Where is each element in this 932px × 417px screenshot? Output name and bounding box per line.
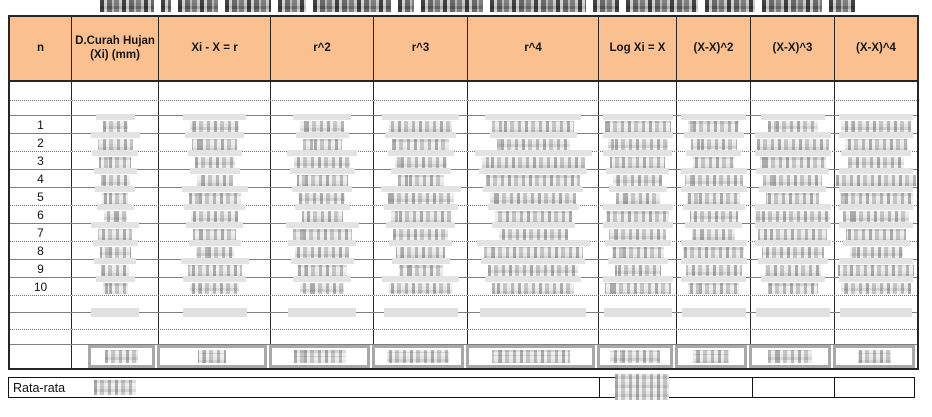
redacted-light-blob	[91, 132, 140, 138]
redacted-total-value	[693, 350, 729, 363]
redacted-value-blob	[686, 265, 742, 276]
redacted-light-blob	[290, 168, 355, 174]
totals-cell	[833, 345, 915, 368]
redacted-light-blob	[755, 240, 831, 246]
redacted-value-blob	[101, 265, 129, 276]
redacted-value-blob	[389, 121, 452, 132]
redacted-light-blob	[293, 276, 351, 282]
redacted-value-blob	[690, 211, 738, 222]
value-cell	[751, 134, 835, 151]
value-cell	[159, 224, 271, 241]
column-header: Log Xi = X	[599, 17, 677, 80]
value-cell	[835, 152, 917, 169]
value-cell	[72, 116, 159, 133]
redacted-title-segment	[178, 0, 218, 12]
redacted-value-blob	[605, 283, 671, 294]
value-cell	[677, 260, 751, 277]
totals-spacer	[72, 345, 88, 368]
value-cell	[599, 224, 677, 241]
redacted-title	[100, 0, 862, 12]
redacted-light-blob	[756, 168, 829, 174]
value-cell	[271, 330, 374, 344]
redacted-value-blob	[758, 229, 827, 240]
value-cell	[374, 82, 468, 100]
redacted-value-blob	[766, 193, 819, 204]
redacted-value-blob	[302, 211, 343, 222]
redacted-value-blob	[687, 193, 740, 204]
value-cell	[677, 296, 751, 312]
redacted-title-segment	[626, 0, 698, 12]
redacted-light-blob	[681, 114, 746, 120]
redacted-light-blob	[761, 276, 825, 282]
redacted-value-blob	[197, 175, 233, 186]
column-header: r^4	[468, 17, 599, 80]
value-cell	[751, 242, 835, 259]
redacted-value-blob	[298, 265, 347, 276]
totals-cell	[597, 345, 673, 368]
row-number-cell: 1	[10, 116, 72, 133]
value-cell	[271, 278, 374, 295]
value-cell	[72, 278, 159, 295]
redacted-value-blob	[104, 211, 127, 222]
value-cell	[468, 188, 599, 205]
value-cell	[751, 82, 835, 100]
faint-redacted-blob	[288, 308, 356, 317]
redacted-light-blob	[490, 132, 577, 138]
value-cell	[468, 152, 599, 169]
redacted-light-blob	[609, 186, 667, 192]
totals-cell	[372, 345, 464, 368]
redacted-light-blob	[186, 222, 243, 228]
faint-redacted-blob	[840, 308, 912, 317]
value-cell	[835, 224, 917, 241]
redacted-light-blob	[381, 186, 461, 192]
redacted-light-blob	[755, 222, 831, 228]
redacted-value-blob	[192, 139, 237, 150]
redacted-value-blob	[841, 121, 911, 132]
value-cell	[751, 152, 835, 169]
redacted-light-blob	[683, 204, 745, 210]
redacted-light-blob	[295, 204, 350, 210]
value-cell	[72, 242, 159, 259]
redacted-value-blob	[398, 175, 444, 186]
value-cell	[835, 116, 917, 133]
value-cell	[835, 134, 917, 151]
redacted-value-blob	[755, 211, 830, 222]
value-cell	[374, 330, 468, 344]
redacted-light-blob	[839, 276, 913, 282]
value-cell	[677, 82, 751, 100]
value-cell	[159, 170, 271, 187]
redacted-value-blob	[191, 211, 238, 222]
redacted-value-blob	[685, 175, 743, 186]
redacted-value-blob	[760, 157, 826, 168]
column-header: Xi - X = r	[159, 17, 271, 80]
table-header-row: nD.Curah Hujan (Xi) (mm)Xi - X = rr^2r^3…	[10, 17, 917, 82]
value-cell	[271, 170, 374, 187]
row-number-cell: 3	[10, 152, 72, 169]
redacted-light-blob	[181, 258, 249, 264]
column-header: r^3	[374, 17, 468, 80]
redacted-value-blob	[763, 175, 822, 186]
redacted-light-blob	[386, 222, 455, 228]
redacted-value-blob	[615, 265, 661, 276]
redacted-light-blob	[603, 276, 673, 282]
redacted-value-blob	[195, 157, 235, 168]
redacted-light-blob	[477, 240, 590, 246]
redacted-total-value	[294, 350, 346, 363]
value-cell	[72, 206, 159, 223]
redacted-average-log-value	[615, 374, 669, 400]
redacted-light-blob	[286, 222, 359, 228]
value-cell	[835, 82, 917, 100]
redacted-light-blob	[681, 276, 746, 282]
value-cell	[468, 330, 599, 344]
value-cell	[677, 188, 751, 205]
value-cell	[271, 224, 374, 241]
value-cell	[599, 134, 677, 151]
value-cell	[271, 152, 374, 169]
redacted-value-blob	[293, 229, 352, 240]
value-cell	[677, 206, 751, 223]
value-cell	[599, 278, 677, 295]
row-number-cell: 5	[10, 188, 72, 205]
redacted-light-blob	[759, 186, 826, 192]
value-cell	[599, 170, 677, 187]
redacted-value-blob	[391, 211, 451, 222]
redacted-light-blob	[839, 186, 913, 192]
redacted-value-blob	[193, 229, 236, 240]
redacted-light-blob	[288, 240, 356, 246]
redacted-light-blob	[183, 114, 246, 120]
redacted-light-blob	[485, 276, 581, 282]
faint-redacted-blob	[384, 308, 458, 317]
value-cell	[835, 188, 917, 205]
redacted-light-blob	[681, 186, 747, 192]
row-number-cell: 4	[10, 170, 72, 187]
redacted-title-segment	[490, 0, 586, 12]
value-cell	[751, 296, 835, 312]
redacted-value-blob	[103, 283, 128, 294]
value-cell	[599, 152, 677, 169]
redacted-title-segment	[161, 0, 171, 12]
value-cell	[468, 224, 599, 241]
redacted-value-blob	[768, 121, 818, 132]
redacted-average-rainfall-value	[94, 380, 136, 395]
redacted-light-blob	[839, 204, 913, 210]
redacted-title-segment	[398, 0, 414, 12]
value-cell	[271, 260, 374, 277]
value-cell	[468, 170, 599, 187]
value-cell	[599, 82, 677, 100]
redacted-light-blob	[755, 150, 831, 156]
value-cell	[677, 152, 751, 169]
row-number-cell: 6	[10, 206, 72, 223]
redacted-total-value	[492, 350, 570, 363]
redacted-light-blob	[758, 258, 828, 264]
redacted-title-segment	[829, 0, 855, 12]
value-cell	[677, 330, 751, 344]
redacted-value-blob	[488, 265, 578, 276]
redacted-light-blob	[190, 168, 240, 174]
redacted-value-blob	[299, 193, 345, 204]
rata-rata-label: Rata-rata	[9, 381, 65, 395]
redacted-value-blob	[499, 229, 568, 240]
value-cell	[374, 134, 468, 151]
value-cell	[72, 330, 159, 344]
redacted-value-blob	[297, 175, 348, 186]
redacted-value-blob	[768, 283, 818, 294]
redacted-total-value	[387, 350, 449, 363]
value-cell	[677, 278, 751, 295]
redacted-light-blob	[291, 258, 354, 264]
redacted-value-blob	[98, 139, 133, 150]
column-header: n	[10, 17, 72, 80]
value-cell	[374, 152, 468, 169]
value-cell	[468, 116, 599, 133]
redacted-value-blob	[606, 211, 669, 222]
redacted-light-blob	[755, 204, 831, 210]
rata-rata-row: Rata-rata	[8, 377, 915, 398]
value-cell	[159, 134, 271, 151]
redacted-light-blob	[839, 114, 913, 120]
redacted-light-blob	[188, 150, 242, 156]
value-cell	[468, 278, 599, 295]
rata-rata-empty-cell	[752, 378, 834, 397]
redacted-light-blob	[488, 204, 579, 210]
redacted-value-blob	[100, 247, 131, 258]
value-cell	[374, 206, 468, 223]
redacted-light-blob	[391, 168, 451, 174]
redacted-value-blob	[692, 229, 735, 240]
faint-redacted-blob	[682, 308, 746, 317]
value-cell	[751, 278, 835, 295]
value-cell	[599, 330, 677, 344]
value-cell	[751, 116, 835, 133]
faint-redacted-blob	[604, 308, 672, 317]
table-body: 12345678910	[10, 82, 917, 368]
row-number-cell: 7	[10, 224, 72, 241]
value-cell	[72, 188, 159, 205]
value-cell	[835, 242, 917, 259]
redacted-value-blob	[608, 139, 668, 150]
value-cell	[599, 296, 677, 312]
value-cell	[677, 170, 751, 187]
redacted-light-blob	[681, 240, 747, 246]
value-cell	[374, 242, 468, 259]
redacted-light-blob	[605, 240, 671, 246]
redacted-value-blob	[396, 247, 445, 258]
redacted-value-blob	[846, 229, 906, 240]
redacted-value-blob	[399, 265, 443, 276]
row-number-cell	[10, 330, 72, 344]
redacted-light-blob	[384, 204, 458, 210]
redacted-light-blob	[603, 114, 673, 120]
value-cell	[159, 188, 271, 205]
totals-cell	[157, 345, 267, 368]
redacted-light-blob	[603, 150, 672, 156]
value-cell	[468, 242, 599, 259]
value-cell	[468, 206, 599, 223]
redacted-title-segment	[100, 0, 154, 12]
redacted-value-blob	[389, 283, 452, 294]
redacted-total-value	[858, 350, 891, 363]
redacted-light-blob	[839, 132, 913, 138]
empty-row	[10, 82, 917, 101]
redacted-value-blob	[613, 175, 662, 186]
redacted-title-segment	[278, 0, 306, 12]
value-cell	[271, 188, 374, 205]
row-number-cell	[10, 313, 72, 329]
value-cell	[374, 188, 468, 205]
redacted-value-blob	[616, 193, 660, 204]
redacted-value-blob	[841, 283, 911, 294]
redacted-value-blob	[843, 211, 909, 222]
redacted-value-blob	[492, 121, 574, 132]
redacted-value-blob	[388, 193, 454, 204]
value-cell	[159, 278, 271, 295]
redacted-total-value	[198, 350, 226, 363]
redacted-value-blob	[99, 157, 131, 168]
value-cell	[374, 224, 468, 241]
value-cell	[271, 296, 374, 312]
value-cell	[159, 330, 271, 344]
redacted-light-blob	[839, 258, 913, 264]
redacted-value-blob	[497, 139, 570, 150]
redacted-light-blob	[182, 186, 248, 192]
value-cell	[599, 206, 677, 223]
redacted-light-blob	[608, 258, 668, 264]
redacted-light-blob	[761, 114, 825, 120]
value-cell	[271, 134, 374, 151]
redacted-light-blob	[839, 168, 913, 174]
redacted-value-blob	[610, 157, 665, 168]
redacted-light-blob	[485, 114, 581, 120]
redacted-light-blob	[606, 168, 669, 174]
rainfall-calculation-sheet: nD.Curah Hujan (Xi) (mm)Xi - X = rr^2r^3…	[0, 0, 932, 417]
redacted-value-blob	[189, 193, 241, 204]
redacted-value-blob	[490, 193, 576, 204]
redacted-value-blob	[838, 265, 914, 276]
redacted-value-blob	[848, 157, 904, 168]
redacted-light-blob	[685, 222, 742, 228]
redacted-value-blob	[688, 283, 739, 294]
redacted-light-blob	[684, 132, 744, 138]
rata-rata-log-cell	[599, 378, 752, 397]
redacted-light-blob	[95, 186, 135, 192]
redacted-light-blob	[392, 258, 450, 264]
redacted-light-blob	[603, 204, 673, 210]
redacted-title-segment	[313, 0, 391, 12]
redacted-light-blob	[94, 168, 137, 174]
redacted-value-blob	[295, 247, 349, 258]
value-cell	[599, 188, 677, 205]
totals-cell	[749, 345, 831, 368]
redacted-value-blob	[612, 247, 664, 258]
value-cell	[72, 82, 159, 100]
value-cell	[159, 206, 271, 223]
redacted-light-blob	[183, 276, 246, 282]
totals-cell	[466, 345, 595, 368]
redacted-light-blob	[382, 276, 459, 282]
value-cell	[468, 296, 599, 312]
redacted-light-blob	[382, 114, 459, 120]
value-cell	[835, 170, 917, 187]
redacted-value-blob	[693, 157, 734, 168]
redacted-light-blob	[91, 222, 139, 228]
redacted-light-blob	[481, 258, 585, 264]
redacted-light-blob	[603, 132, 673, 138]
redacted-value-blob	[392, 139, 449, 150]
value-cell	[835, 330, 917, 344]
value-cell	[72, 152, 159, 169]
redacted-value-blob	[609, 229, 666, 240]
value-cell	[72, 170, 159, 187]
row-number-cell	[10, 101, 72, 115]
value-cell	[72, 260, 159, 277]
redacted-light-blob	[287, 150, 357, 156]
value-cell	[599, 242, 677, 259]
value-cell	[599, 260, 677, 277]
redacted-light-blob	[96, 276, 135, 282]
column-header: D.Curah Hujan (Xi) (mm)	[72, 17, 159, 80]
redacted-value-blob	[98, 229, 132, 240]
redacted-light-blob	[686, 150, 741, 156]
faint-redacted-blob	[756, 308, 830, 317]
redacted-value-blob	[850, 247, 903, 258]
redacted-value-blob	[103, 121, 128, 132]
empty-row	[10, 330, 917, 345]
redacted-total-value	[610, 350, 660, 363]
row-number-cell: 2	[10, 134, 72, 151]
redacted-light-blob	[475, 150, 592, 156]
value-cell	[271, 206, 374, 223]
redacted-value-blob	[300, 283, 344, 294]
value-cell	[159, 116, 271, 133]
redacted-light-blob	[185, 132, 244, 138]
value-cell	[159, 242, 271, 259]
redacted-light-blob	[96, 114, 135, 120]
redacted-light-blob	[681, 258, 747, 264]
value-cell	[835, 278, 917, 295]
value-cell	[72, 134, 159, 151]
redacted-value-blob	[303, 139, 342, 150]
redacted-value-blob	[300, 121, 344, 132]
redacted-total-value	[105, 350, 138, 363]
redacted-title-segment	[593, 0, 619, 12]
redacted-light-blob	[293, 114, 351, 120]
value-cell	[751, 206, 835, 223]
redacted-value-blob	[190, 121, 239, 132]
redacted-value-blob	[393, 229, 448, 240]
redacted-total-value	[768, 350, 812, 363]
column-header: r^2	[271, 17, 374, 80]
redacted-light-blob	[843, 240, 910, 246]
redacted-light-blob	[292, 186, 352, 192]
value-cell	[751, 330, 835, 344]
redacted-light-blob	[479, 168, 587, 174]
column-header: (X-X)^3	[751, 17, 835, 80]
redacted-value-blob	[196, 247, 234, 258]
value-cell	[72, 296, 159, 312]
redacted-value-blob	[101, 175, 130, 186]
redacted-light-blob	[389, 240, 452, 246]
redacted-light-blob	[92, 150, 138, 156]
value-cell	[835, 260, 917, 277]
value-cell	[677, 116, 751, 133]
totals-cell	[675, 345, 747, 368]
value-cell	[677, 134, 751, 151]
